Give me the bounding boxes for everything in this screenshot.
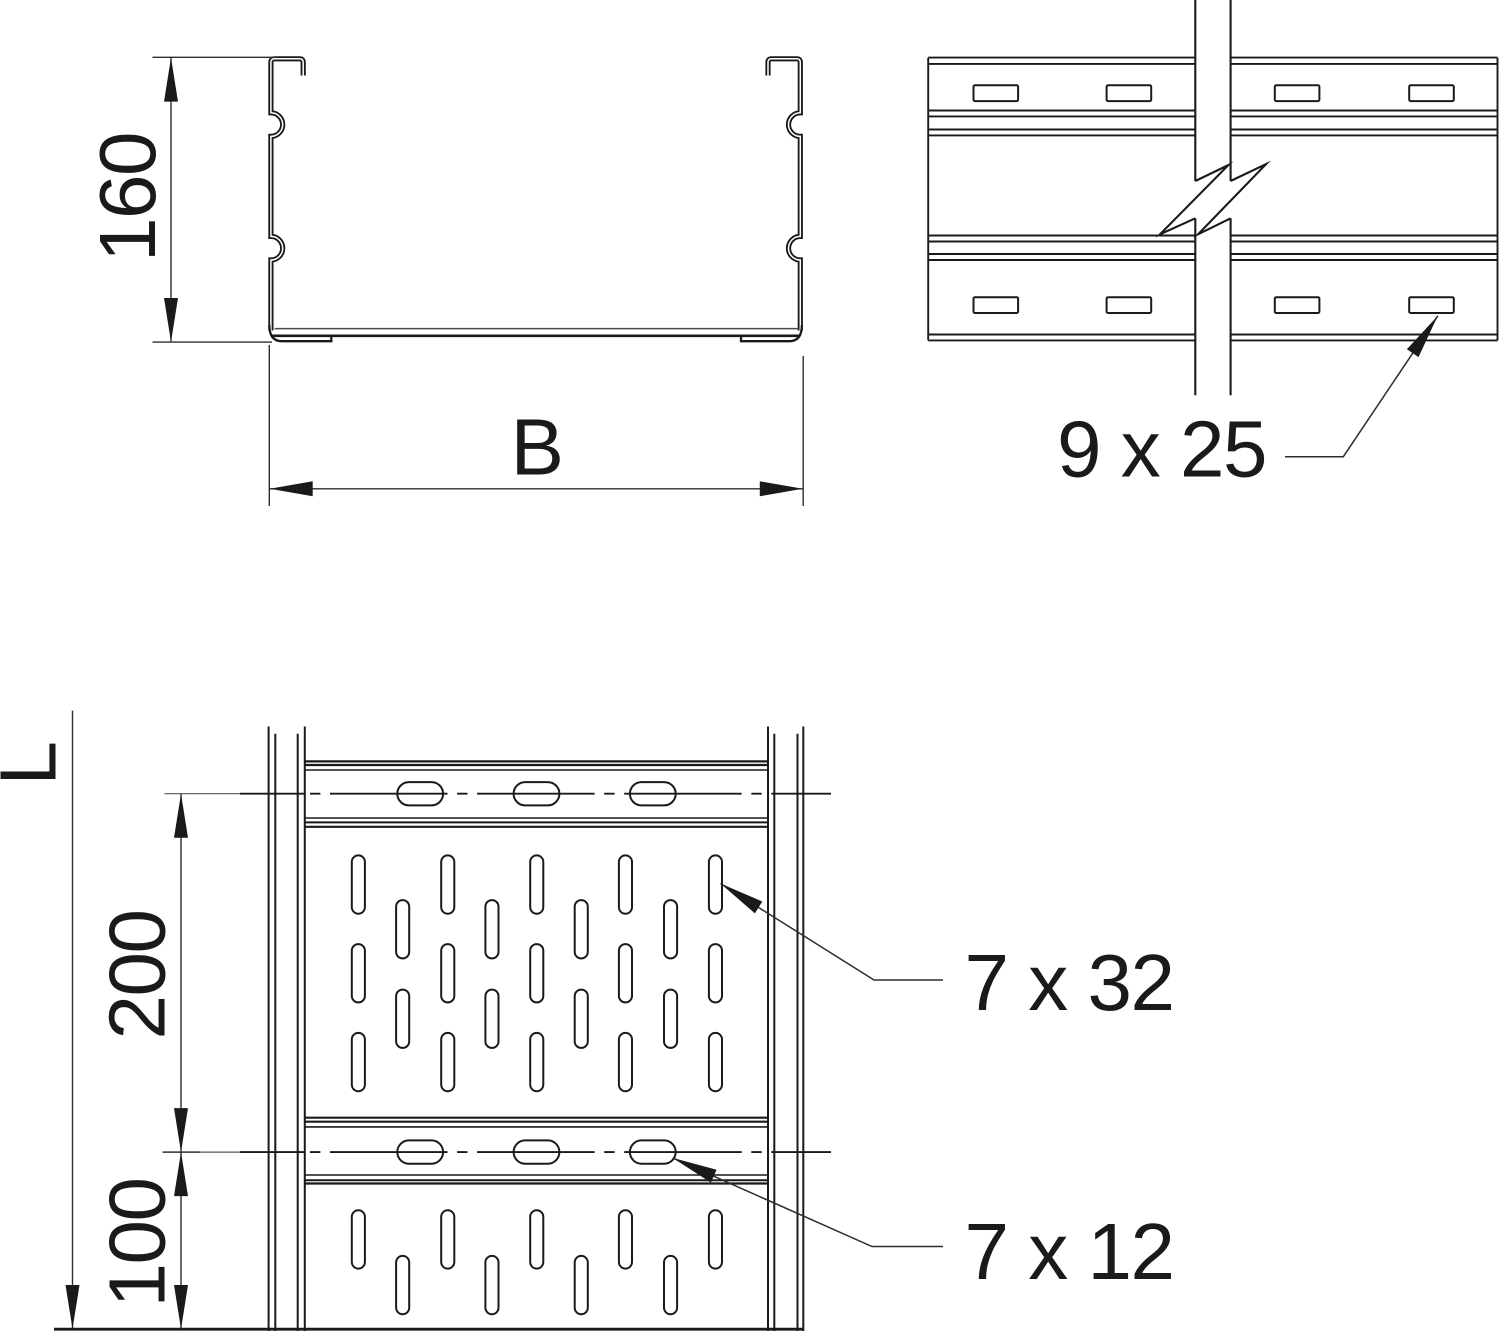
- svg-text:7 x 32: 7 x 32: [965, 938, 1174, 1027]
- svg-text:100: 100: [93, 1179, 182, 1308]
- svg-text:B: B: [511, 403, 563, 492]
- svg-text:L: L: [0, 743, 73, 786]
- svg-text:160: 160: [83, 133, 172, 262]
- svg-text:9 x 25: 9 x 25: [1057, 405, 1266, 494]
- svg-text:200: 200: [93, 911, 182, 1040]
- svg-text:7 x 12: 7 x 12: [965, 1207, 1174, 1296]
